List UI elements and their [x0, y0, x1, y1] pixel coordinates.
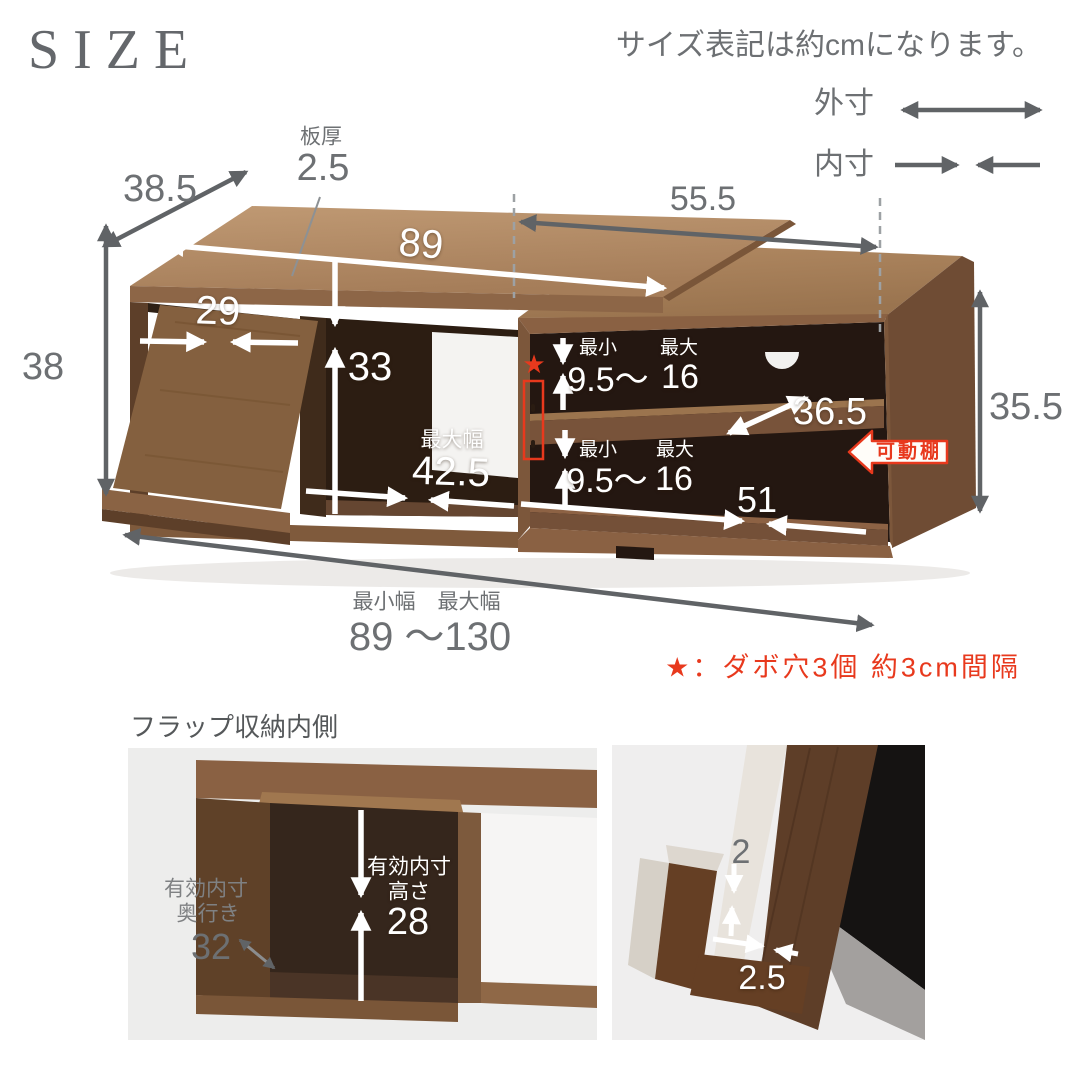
width-range-value: 89 ～130: [349, 617, 511, 657]
shelf-upper-range-from: 9.5～: [567, 363, 648, 397]
flap-depth-value: 32: [191, 929, 231, 965]
flap-height-label-2: 高さ: [388, 882, 430, 903]
dim-slide-width: 55.5: [670, 182, 736, 216]
shelf-upper-min-label: 最小: [579, 339, 617, 358]
center-max-value: 42.5: [411, 451, 490, 494]
flap-depth-label-1: 有効内寸: [164, 879, 248, 900]
dim-inner-depth: 36.5: [793, 393, 867, 431]
center-max-label: 最大幅: [421, 430, 484, 451]
dim-left-inner-height: 33: [348, 347, 393, 387]
diagram-artwork: [0, 0, 1080, 1080]
dim-top-width: 89: [397, 222, 444, 265]
page-title: SIZE: [28, 18, 202, 82]
shelf-lower-range-to: 16: [655, 462, 693, 496]
dim-flap-inner-width: 29: [195, 290, 241, 332]
max-width-label: 最大幅: [438, 592, 501, 613]
flap-section-title: フラップ収納内側: [130, 714, 338, 740]
shelf-lower-min-label: 最小: [579, 441, 617, 460]
min-width-label: 最小幅: [353, 592, 416, 613]
movable-shelf-badge: 可動棚: [876, 443, 942, 462]
dim-left-outer-height: 38: [22, 348, 64, 386]
dowel-star-icon: ★: [522, 351, 545, 377]
arrow-29-a: [140, 341, 204, 342]
unit-note: サイズ表記は約cmになります。: [616, 31, 1042, 61]
flap-height-label-1: 有効内寸: [367, 857, 451, 878]
flap-height-value: 28: [387, 903, 429, 941]
inner-dim-label: 内寸: [814, 150, 874, 180]
shelf-upper-max-label: 最大: [660, 339, 698, 358]
thickness-label: 板厚: [300, 127, 342, 148]
dim-bottom-inner-width: 51: [737, 482, 777, 518]
arrow-29-b: [233, 342, 298, 343]
dowel-hole-dot: [531, 440, 535, 448]
flap-depth-label-2: 奥行き: [177, 904, 240, 925]
shelf-upper-range-to: 16: [661, 360, 699, 394]
dowel-note: ★：ダボ穴3個 約3cm間隔: [665, 655, 1021, 682]
flap-lip-thickness: 2: [732, 835, 751, 869]
dim-depth-top: 38.5: [123, 170, 197, 208]
dowel-hole-dot: [531, 404, 535, 412]
size-diagram-page: SIZE サイズ表記は約cmになります。 外寸 内寸 38.5 板厚 2.5 8…: [0, 0, 1080, 1080]
outer-dim-label: 外寸: [814, 89, 874, 119]
shelf-lower-max-label: 最大: [656, 441, 694, 460]
flap-gap-width: 2.5: [738, 961, 785, 995]
dim-right-outer-height: 35.5: [989, 388, 1063, 426]
arrow-2-b: [731, 908, 732, 936]
shelf-lower-range-from: 9.5～: [566, 464, 647, 498]
thickness-value: 2.5: [297, 149, 350, 187]
